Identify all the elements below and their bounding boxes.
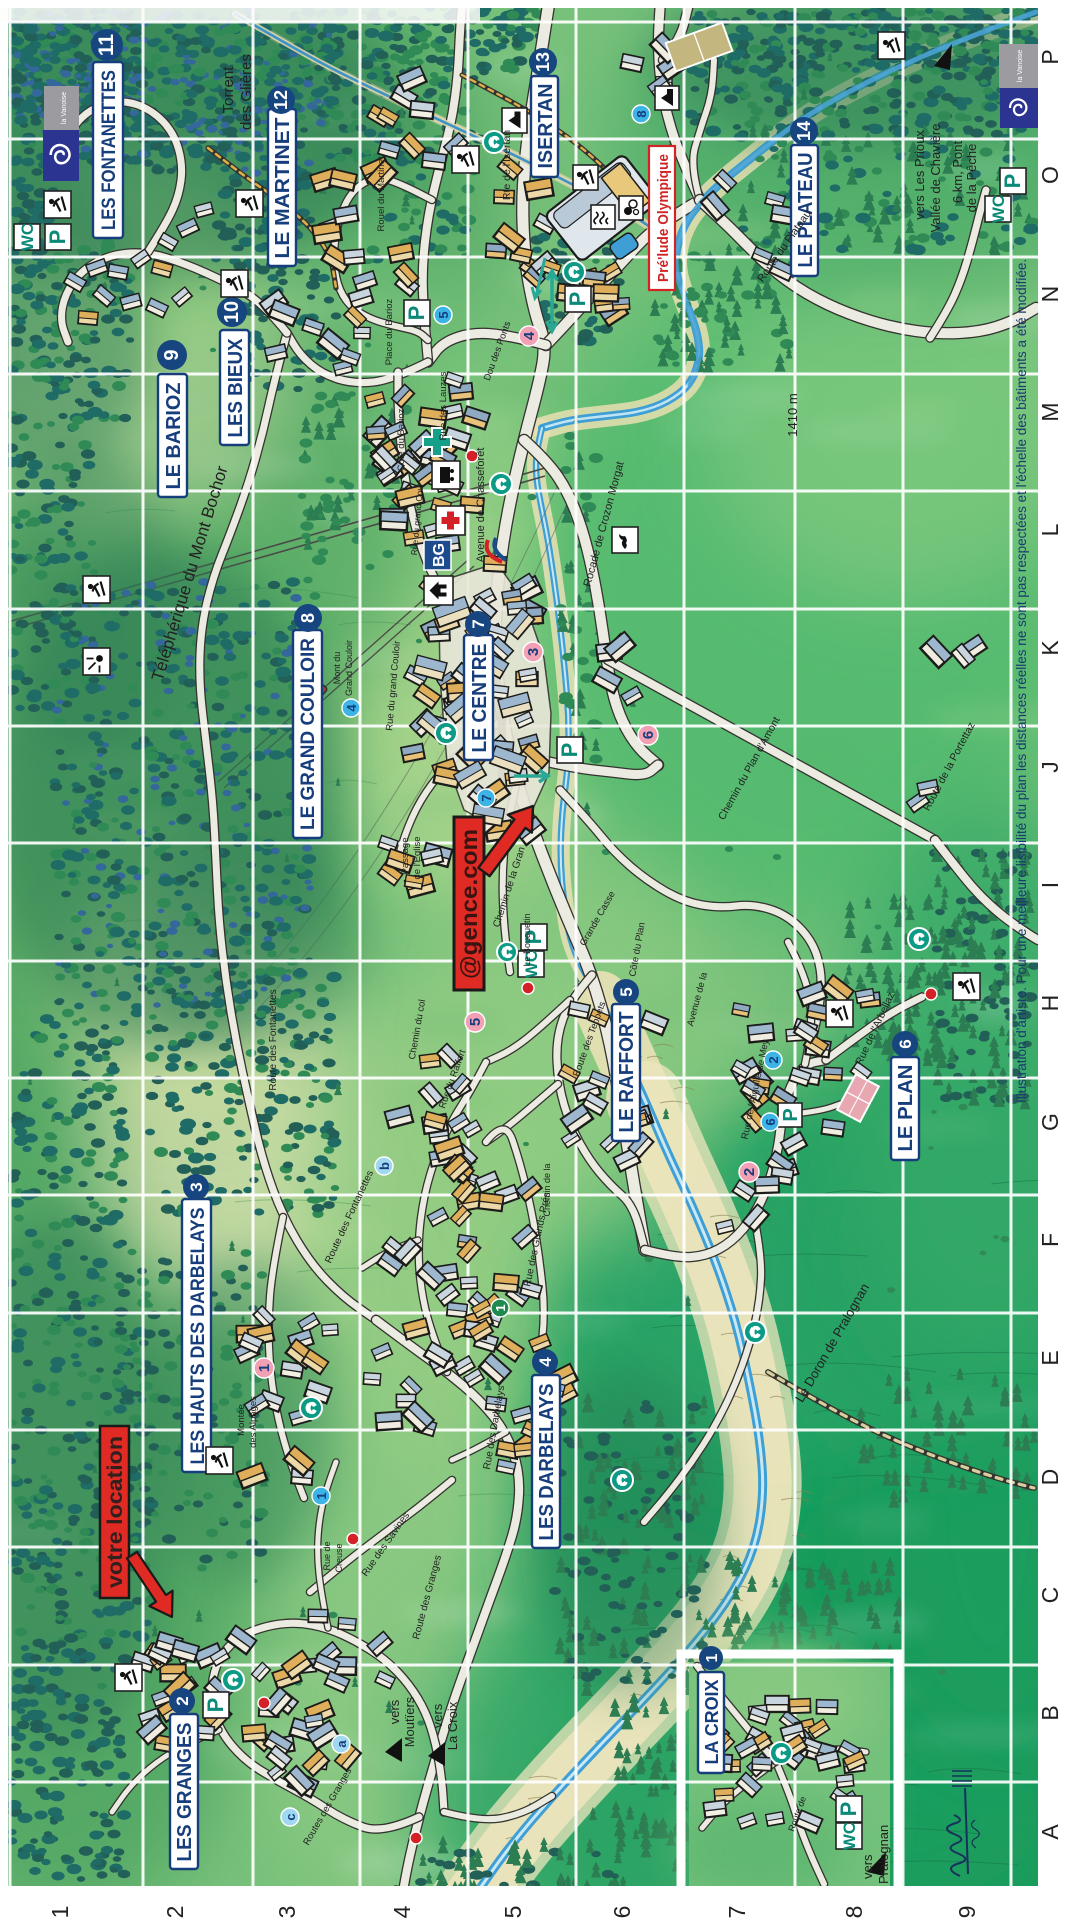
svg-text:ISERTAN: ISERTAN (535, 84, 557, 169)
svg-text:Torrent: Torrent (220, 66, 237, 114)
svg-text:2: 2 (173, 1696, 192, 1705)
svg-text:c: c (283, 1813, 298, 1820)
svg-text:N: N (1037, 286, 1063, 303)
svg-text:LES BIEUX: LES BIEUX (225, 338, 247, 438)
svg-text:LES HAUTS DES DARBELAYS: LES HAUTS DES DARBELAYS (188, 1208, 209, 1465)
svg-text:de la Pêche: de la Pêche (964, 144, 979, 213)
svg-text:9: 9 (161, 349, 183, 360)
svg-text:10: 10 (221, 301, 243, 323)
svg-text:Le Bouquetin: Le Bouquetin (522, 913, 532, 966)
svg-text:1410 m: 1410 m (785, 393, 800, 436)
svg-text:1: 1 (704, 1653, 721, 1662)
svg-text:LE MARTINET: LE MARTINET (272, 118, 294, 259)
svg-text:5: 5 (467, 1018, 484, 1026)
svg-text:Avenue de Chasseforêt: Avenue de Chasseforêt (475, 448, 487, 563)
svg-text:vers Les Prioux: vers Les Prioux (912, 130, 927, 220)
svg-text:O: O (1037, 166, 1063, 184)
svg-text:BG: BG (431, 543, 448, 567)
svg-text:Route des Fontanettes: Route des Fontanettes (268, 989, 279, 1090)
svg-text:Rue de: Rue de (322, 1541, 332, 1570)
svg-text:LES FONTANETTES: LES FONTANETTES (99, 70, 120, 230)
svg-text:5: 5 (500, 1906, 526, 1919)
svg-text:13: 13 (533, 52, 553, 72)
svg-text:1: 1 (256, 1364, 273, 1372)
svg-text:12: 12 (271, 90, 291, 110)
svg-text:des Alpages: des Alpages (248, 1396, 259, 1448)
svg-text:la Vanoise: la Vanoise (61, 92, 68, 124)
svg-text:B: B (1037, 1705, 1063, 1720)
svg-text:1: 1 (47, 1906, 73, 1919)
svg-text:WC: WC (18, 223, 37, 251)
svg-text:La Croix: La Croix (445, 1701, 460, 1750)
svg-text:5: 5 (436, 311, 451, 318)
svg-text:7: 7 (724, 1906, 750, 1919)
svg-text:vers: vers (387, 1699, 402, 1724)
svg-text:@gence.com: @gence.com (456, 829, 482, 979)
svg-text:6 km, Pont: 6 km, Pont (950, 141, 965, 204)
svg-text:Rte de l'Isertan: Rte de l'Isertan (501, 130, 513, 200)
svg-text:I: I (1037, 882, 1063, 888)
svg-text:1: 1 (314, 1492, 329, 1499)
svg-text:Chemin de la: Chemin de la (542, 1163, 552, 1216)
svg-text:votre location: votre location (104, 1436, 127, 1588)
svg-text:LA CROIX: LA CROIX (702, 1680, 722, 1765)
svg-text:E: E (1037, 1350, 1063, 1365)
svg-text:2: 2 (766, 1056, 781, 1063)
svg-text:LE GRAND COULOIR: LE GRAND COULOIR (298, 638, 319, 830)
svg-text:8: 8 (841, 1906, 867, 1919)
svg-text:4: 4 (536, 1357, 555, 1367)
svg-text:5: 5 (617, 987, 636, 996)
svg-text:LES GRANGES: LES GRANGES (174, 1723, 196, 1862)
svg-text:P: P (404, 306, 429, 321)
svg-text:4: 4 (521, 331, 538, 340)
svg-text:vers: vers (430, 1703, 445, 1728)
svg-text:4: 4 (389, 1905, 415, 1918)
svg-text:3: 3 (274, 1906, 300, 1919)
svg-text:Place du Barioz: Place du Barioz (384, 298, 395, 365)
svg-text:P: P (1000, 174, 1025, 189)
svg-text:P: P (836, 1802, 861, 1817)
svg-text:M: M (1037, 402, 1063, 421)
svg-text:6: 6 (609, 1906, 635, 1919)
svg-text:de l'Église: de l'Église (412, 836, 423, 879)
svg-text:9: 9 (954, 1906, 980, 1919)
svg-text:Pré'lude Olympique: Pré'lude Olympique (655, 154, 672, 282)
svg-text:6: 6 (763, 1118, 778, 1125)
svg-text:F: F (1037, 1233, 1063, 1247)
svg-text:Montée: Montée (236, 1404, 247, 1436)
svg-text:7: 7 (479, 794, 494, 801)
svg-text:6: 6 (896, 1039, 915, 1048)
svg-text:Rue des Lauzes: Rue des Lauzes (438, 371, 449, 440)
svg-text:Illustration d'artiste. Pour u: Illustration d'artiste. Pour une meilleu… (1014, 259, 1029, 1103)
svg-text:C: C (1037, 1587, 1063, 1604)
svg-text:3: 3 (525, 648, 542, 656)
svg-text:2: 2 (741, 1168, 758, 1176)
svg-text:Moutïers: Moutïers (402, 1696, 417, 1747)
svg-text:b: b (377, 1162, 392, 1170)
svg-text:4: 4 (344, 704, 359, 712)
svg-text:Mont du: Mont du (332, 652, 342, 685)
svg-text:LE RAFFORT: LE RAFFORT (616, 1012, 638, 1133)
svg-text:L: L (1037, 523, 1063, 536)
svg-text:P: P (557, 743, 582, 758)
svg-text:LES DARBELAYS: LES DARBELAYS (536, 1384, 558, 1541)
svg-text:1: 1 (493, 1304, 508, 1311)
svg-text:8: 8 (298, 613, 318, 623)
svg-text:J: J (1037, 761, 1063, 773)
svg-text:P: P (565, 292, 590, 307)
svg-text:2: 2 (162, 1906, 188, 1919)
svg-text:D: D (1037, 1469, 1063, 1486)
svg-text:P: P (203, 1698, 228, 1713)
svg-text:Pralognan: Pralognan (876, 1825, 891, 1884)
svg-text:LE PLAN: LE PLAN (895, 1065, 917, 1152)
svg-text:7: 7 (469, 619, 488, 628)
svg-text:K: K (1037, 640, 1063, 656)
svg-text:11: 11 (95, 34, 118, 57)
svg-text:Côte du Barioz: Côte du Barioz (396, 408, 407, 471)
svg-text:WC: WC (840, 1822, 859, 1850)
svg-text:G: G (1037, 1113, 1063, 1131)
svg-text:la Vanoise: la Vanoise (1017, 50, 1024, 82)
svg-text:LE CENTRE: LE CENTRE (469, 644, 491, 753)
svg-text:6: 6 (640, 731, 657, 739)
svg-text:P: P (780, 1108, 802, 1121)
svg-text:a: a (334, 1740, 349, 1748)
svg-text:Passage: Passage (400, 838, 411, 875)
svg-text:8: 8 (634, 110, 649, 117)
svg-text:3: 3 (187, 1182, 206, 1191)
svg-text:14: 14 (794, 121, 814, 141)
svg-text:H: H (1037, 995, 1063, 1012)
svg-text:WC: WC (989, 195, 1008, 223)
svg-text:LE BARIOZ: LE BARIOZ (163, 383, 185, 490)
svg-text:P: P (1037, 49, 1063, 64)
svg-text:Vallée de Chavière: Vallée de Chavière (928, 124, 943, 233)
svg-text:Rouel du Martinet: Rouel du Martinet (376, 156, 387, 231)
svg-text:Grand Couloir: Grand Couloir (344, 640, 354, 696)
svg-text:A: A (1037, 1824, 1063, 1840)
svg-text:Creuse: Creuse (334, 1543, 344, 1572)
svg-text:vers: vers (860, 1854, 875, 1879)
svg-text:P: P (45, 230, 70, 245)
svg-text:des Glières: des Glières (238, 54, 255, 130)
